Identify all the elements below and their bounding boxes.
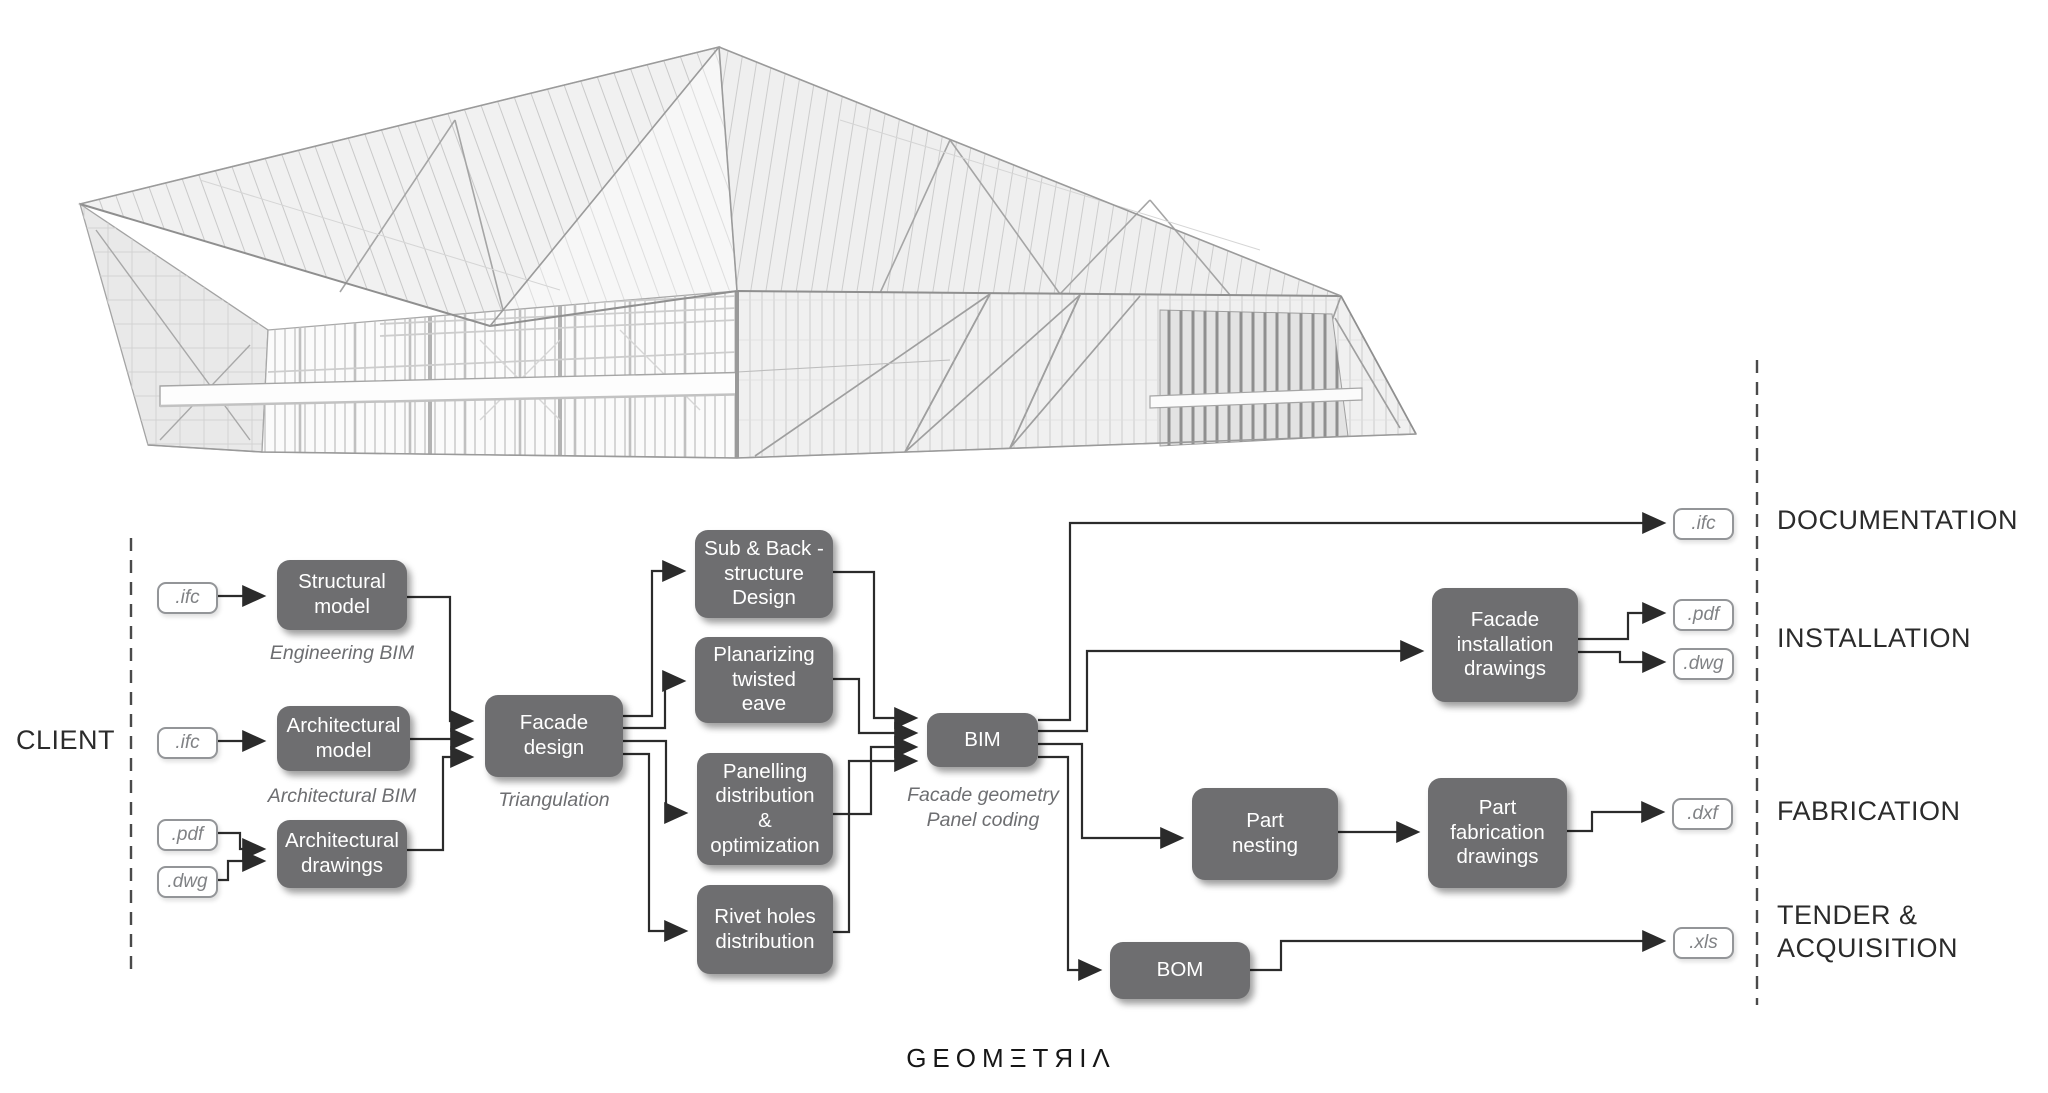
client-label: CLIENT: [16, 724, 115, 757]
node-sub-back-structure: Sub & Back - structure Design: [695, 530, 833, 618]
chip-dwg-in-text: .dwg: [167, 871, 207, 893]
connector-dwg-to-drawings: [214, 861, 262, 880]
connector-bim-to-installation: [1038, 651, 1420, 731]
chip-dwg-out: .dwg: [1673, 648, 1734, 680]
caption-engineering-bim: Engineering BIM: [244, 641, 440, 666]
node-rivet-holes: Rivet holes distribution: [697, 885, 833, 974]
connector-bom-to-xls-out: [1250, 941, 1662, 970]
node-architectural-drawings: Architectural drawings: [277, 820, 407, 888]
connector-installation-to-dwg-out: [1578, 652, 1662, 662]
flow-connectors: [0, 0, 2048, 1093]
section-label-installation: INSTALLATION: [1777, 622, 1971, 655]
node-structural-model: Structural model: [277, 560, 407, 630]
chip-dxf-out: .dxf: [1672, 798, 1733, 830]
connector-facadedesign-to-subback: [623, 571, 682, 716]
chip-ifc-out-text: .ifc: [1691, 513, 1715, 535]
caption-bim: Facade geometry Panel coding: [883, 783, 1083, 834]
chip-dxf-out-text: .dxf: [1687, 803, 1718, 825]
caption-architectural-bim: Architectural BIM: [244, 784, 440, 809]
chip-ifc-architectural-text: .ifc: [175, 732, 199, 754]
chip-pdf-out: .pdf: [1673, 599, 1734, 631]
connector-facadedesign-to-rivet: [623, 754, 684, 931]
geometria-logo: GEOMΞTЯIΛ: [880, 1043, 1142, 1074]
node-bim: BIM: [927, 713, 1038, 767]
caption-triangulation: Triangulation: [454, 788, 654, 813]
chip-ifc-structural: .ifc: [157, 582, 218, 614]
section-label-documentation: DOCUMENTATION: [1777, 504, 2018, 537]
chip-dwg-out-text: .dwg: [1683, 653, 1723, 675]
connector-pdf-to-drawings: [214, 833, 262, 849]
section-label-tender-acquisition: TENDER & ACQUISITION: [1777, 899, 1958, 965]
node-planarizing: Planarizing twisted eave: [695, 637, 833, 723]
chip-pdf-out-text: .pdf: [1688, 604, 1720, 626]
connector-partfab-to-dxf-out: [1567, 812, 1661, 831]
chip-dwg-in: .dwg: [157, 866, 218, 898]
node-panelling: Panelling distribution & optimization: [697, 753, 833, 865]
node-facade-installation: Facade installation drawings: [1432, 588, 1578, 702]
chip-xls-out: .xls: [1673, 927, 1734, 959]
chip-ifc-out: .ifc: [1673, 508, 1734, 540]
node-part-nesting: Part nesting: [1192, 788, 1338, 880]
connector-subback-to-bim: [833, 572, 914, 718]
chip-xls-out-text: .xls: [1689, 932, 1718, 954]
node-bom: BOM: [1110, 942, 1250, 999]
chip-pdf-in-text: .pdf: [172, 824, 204, 846]
diagram-canvas: CLIENT .ifc .ifc .pdf .dwg Structural mo…: [0, 0, 2048, 1093]
node-architectural-model: Architectural model: [277, 706, 410, 771]
connector-installation-to-pdf-out: [1578, 613, 1662, 639]
chip-pdf-in: .pdf: [157, 819, 218, 851]
section-label-fabrication: FABRICATION: [1777, 795, 1961, 828]
node-facade-design: Facade design: [485, 695, 623, 777]
chip-ifc-structural-text: .ifc: [175, 587, 199, 609]
chip-ifc-architectural: .ifc: [157, 727, 218, 759]
node-part-fabrication: Part fabrication drawings: [1428, 778, 1567, 888]
